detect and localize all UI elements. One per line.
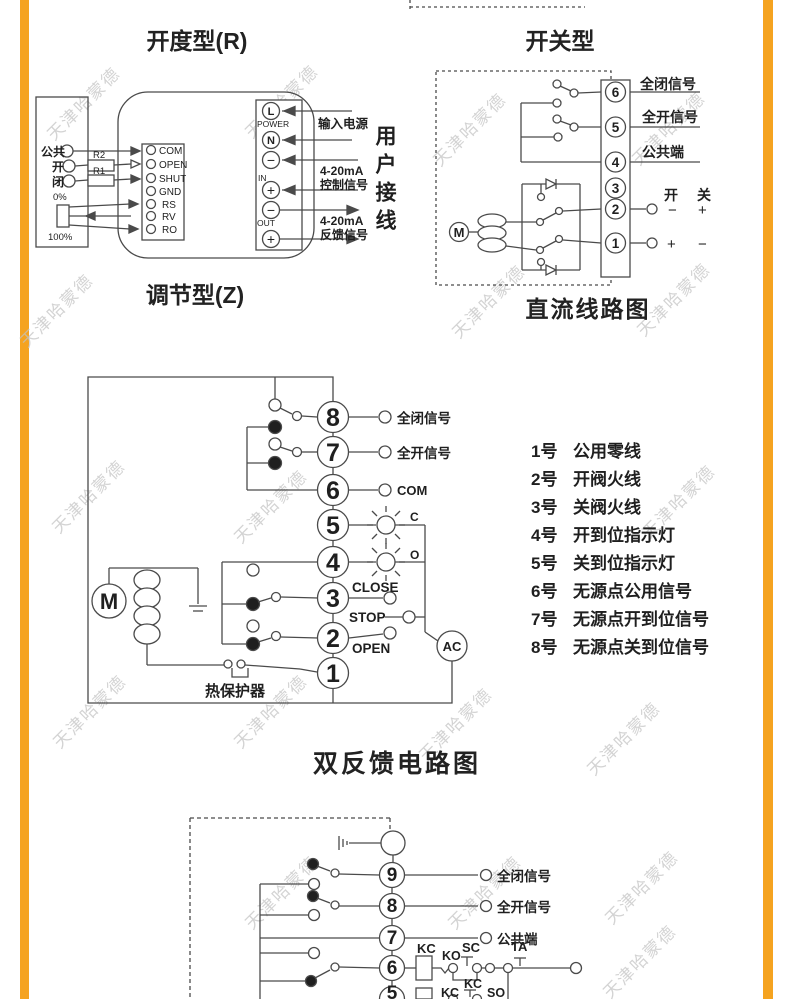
ta-contact-label: TA bbox=[511, 939, 528, 954]
legend-num: 5号 bbox=[531, 549, 573, 574]
pot-0-label: 0% bbox=[53, 192, 67, 203]
diode-bottom bbox=[546, 265, 556, 275]
lamp-c-label: C bbox=[410, 510, 419, 524]
control-range-label: 4-20mA bbox=[320, 164, 364, 178]
power-in-minus: − bbox=[267, 152, 275, 168]
motor-m-label: M bbox=[454, 225, 465, 240]
open-direction-label: 开 bbox=[664, 187, 678, 203]
terminal-ro: RO bbox=[162, 225, 177, 236]
terminal-legend: 1号公用零线 2号开阀火线 3号关阀火线 4号开到位指示灯 5号关到位指示灯 6… bbox=[531, 437, 709, 661]
terminal-7: 7 bbox=[326, 439, 340, 467]
regulating-bottom-title: 调节型(Z) bbox=[146, 276, 244, 310]
terminal-5: 5 bbox=[387, 983, 398, 999]
full-open-signal-label: 全开信号 bbox=[641, 109, 698, 125]
terminal-5: 5 bbox=[326, 512, 340, 540]
terminal-5: 5 bbox=[612, 120, 620, 135]
legend-num: 7号 bbox=[531, 605, 573, 630]
terminal-4: 4 bbox=[326, 549, 340, 577]
power-l: L bbox=[268, 106, 275, 118]
terminal-open: OPEN bbox=[159, 160, 187, 171]
supply-label: 输入电源 bbox=[318, 116, 369, 131]
power-out-minus: − bbox=[267, 202, 275, 218]
input-open-label: 开 bbox=[52, 160, 64, 174]
row1-minus: − bbox=[698, 236, 707, 253]
legend-row: 7号无源点开到位信号 bbox=[531, 605, 709, 633]
legend-num: 2号 bbox=[531, 465, 573, 490]
control-signal-label: 控制信号 bbox=[320, 177, 368, 192]
kc-relay-label: KC bbox=[417, 941, 436, 956]
diode-top bbox=[546, 179, 556, 189]
full-close-signal-label: 全闭信号 bbox=[396, 410, 451, 426]
legend-num: 6号 bbox=[531, 577, 573, 602]
double-feedback-title: 双反馈电路图 bbox=[313, 744, 481, 780]
full-close-signal-label: 全闭信号 bbox=[496, 868, 551, 884]
ko-contact-label: KO bbox=[442, 949, 461, 963]
terminal-shut: SHUT bbox=[159, 174, 186, 185]
wiring-diagram-page: { "page": { "watermark": "天津哈蒙德", "accen… bbox=[0, 0, 790, 999]
legend-label: 关阀火线 bbox=[573, 498, 641, 517]
in-label: IN bbox=[258, 173, 267, 183]
terminal-gnd: GND bbox=[159, 187, 181, 198]
sc-contact-label: SC bbox=[462, 940, 481, 955]
legend-num: 8号 bbox=[531, 633, 573, 658]
row2-minus: − bbox=[668, 202, 677, 219]
row2-plus: + bbox=[698, 202, 707, 219]
resistor-r2-label: R2 bbox=[93, 150, 105, 161]
legend-label: 无源点关到位信号 bbox=[573, 638, 709, 657]
lamp-o-label: O bbox=[410, 548, 419, 562]
so-contact-label: SO bbox=[487, 986, 505, 999]
close-direction-label: 关 bbox=[697, 187, 711, 203]
out-label: OUT bbox=[257, 218, 275, 228]
legend-row: 3号关阀火线 bbox=[531, 493, 709, 521]
feedback-range-label: 4-20mA bbox=[320, 214, 364, 228]
terminal-2: 2 bbox=[326, 625, 340, 653]
switching-top-title: 开关型 bbox=[526, 22, 595, 56]
kc-relay-coil bbox=[416, 956, 432, 980]
legend-row: 1号公用零线 bbox=[531, 437, 709, 465]
power-out-plus: + bbox=[267, 231, 275, 247]
terminal-8: 8 bbox=[387, 896, 398, 917]
full-open-signal-label: 全开信号 bbox=[396, 445, 451, 461]
row1-plus: + bbox=[667, 236, 676, 253]
full-close-signal-label: 全闭信号 bbox=[639, 76, 696, 92]
top-cut-dashed-box bbox=[410, 0, 585, 9]
switching-diagram bbox=[436, 71, 700, 285]
pot-100-label: 100% bbox=[48, 232, 73, 243]
common-terminal-label: 公共端 bbox=[642, 144, 684, 160]
legend-label: 开阀火线 bbox=[573, 470, 641, 489]
terminal-rs: RS bbox=[162, 200, 176, 211]
terminal-rv: RV bbox=[162, 212, 176, 223]
power-label: POWER bbox=[257, 119, 289, 129]
legend-num: 4号 bbox=[531, 521, 573, 546]
terminal-com: COM bbox=[159, 146, 182, 157]
kc3-contact-label: KC bbox=[464, 977, 482, 991]
terminal-6: 6 bbox=[326, 477, 340, 505]
ac-label: AC bbox=[443, 639, 462, 654]
close-button-label: CLOSE bbox=[352, 580, 399, 595]
terminal-1: 1 bbox=[326, 660, 340, 688]
com-label: COM bbox=[397, 483, 427, 498]
ground-symbol bbox=[339, 836, 381, 850]
potentiometer bbox=[57, 205, 69, 227]
legend-row: 8号无源点关到位信号 bbox=[531, 633, 709, 661]
kc2-contact-label: KC bbox=[441, 986, 459, 999]
terminal-3: 3 bbox=[326, 585, 340, 613]
terminal-4: 4 bbox=[612, 155, 620, 170]
regulating-top-title: 开度型(R) bbox=[147, 22, 248, 56]
power-in-plus: + bbox=[267, 182, 275, 198]
terminal-8: 8 bbox=[326, 404, 340, 432]
feedback-signal-label: 反馈信号 bbox=[320, 227, 368, 242]
input-common-label: 公共 bbox=[41, 144, 65, 159]
legend-row: 5号关到位指示灯 bbox=[531, 549, 709, 577]
thermal-protector-symbol bbox=[232, 668, 248, 677]
legend-label: 开到位指示灯 bbox=[573, 526, 675, 545]
legend-row: 4号开到位指示灯 bbox=[531, 521, 709, 549]
resistor-r1-label: R1 bbox=[93, 166, 105, 177]
terminal-1: 1 bbox=[612, 236, 620, 251]
legend-label: 无源点公用信号 bbox=[573, 582, 692, 601]
terminal-2: 2 bbox=[612, 202, 620, 217]
terminal-9: 9 bbox=[387, 865, 398, 886]
stop-button-label: STOP bbox=[349, 610, 386, 625]
thermal-protector-label: 热保护器 bbox=[205, 682, 266, 700]
full-open-signal-label: 全开信号 bbox=[496, 899, 551, 915]
terminal-7: 7 bbox=[387, 928, 398, 949]
power-n: N bbox=[267, 135, 275, 147]
terminal-6: 6 bbox=[612, 85, 620, 100]
legend-label: 关到位指示灯 bbox=[573, 554, 675, 573]
regulating-diagram bbox=[36, 92, 358, 258]
switching-bottom-title: 直流线路图 bbox=[526, 290, 651, 324]
legend-num: 3号 bbox=[531, 493, 573, 518]
legend-label: 公用零线 bbox=[573, 442, 641, 461]
legend-label: 无源点开到位信号 bbox=[573, 610, 709, 629]
user-wiring-label: 用户接线 bbox=[369, 125, 399, 237]
open-button-label: OPEN bbox=[352, 641, 390, 656]
terminal-6: 6 bbox=[387, 958, 398, 979]
input-close-label: 闭 bbox=[52, 174, 64, 189]
terminal-3: 3 bbox=[612, 181, 620, 196]
legend-num: 1号 bbox=[531, 437, 573, 462]
legend-row: 6号无源点公用信号 bbox=[531, 577, 709, 605]
motor-m-label: M bbox=[100, 589, 118, 614]
legend-row: 2号开阀火线 bbox=[531, 465, 709, 493]
